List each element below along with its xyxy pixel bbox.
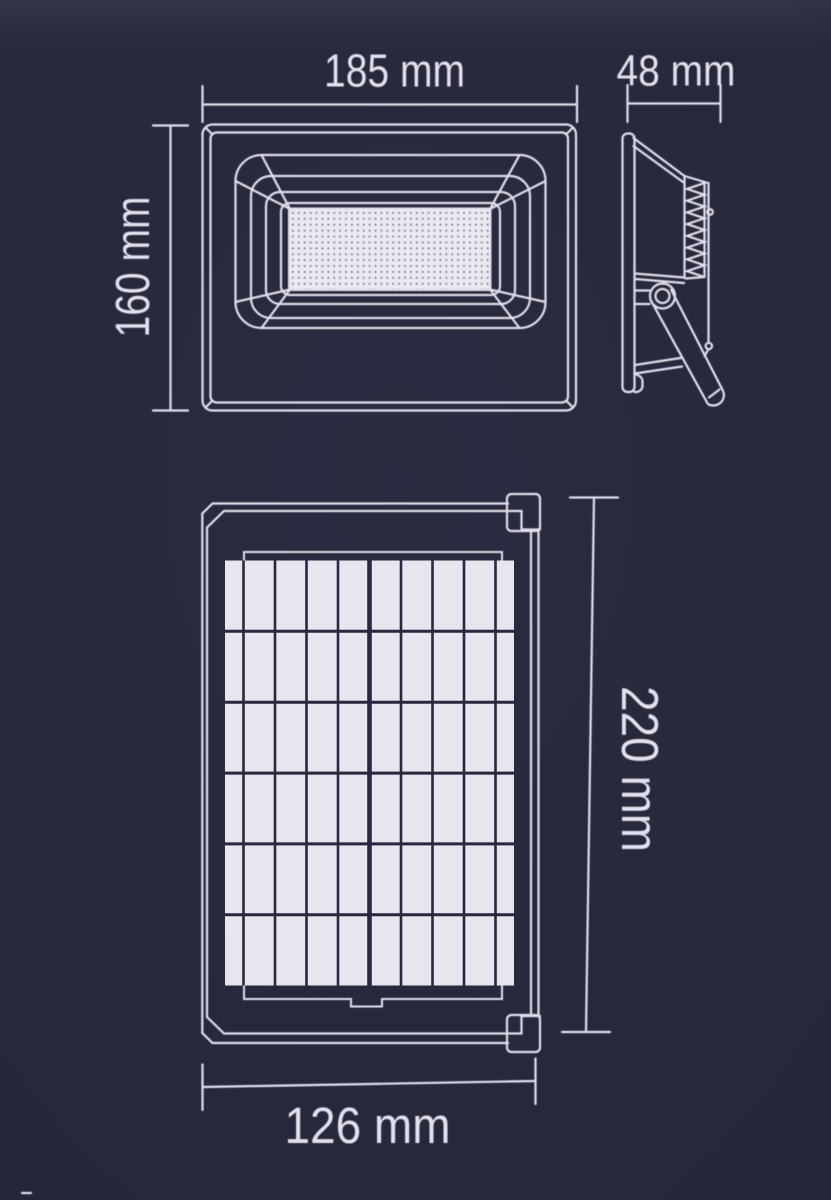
svg-text:220 mm: 220 mm	[610, 686, 668, 852]
svg-text:126 mm: 126 mm	[285, 1097, 451, 1154]
svg-text:48 mm: 48 mm	[617, 47, 736, 96]
svg-text:185 mm: 185 mm	[324, 45, 465, 97]
svg-text:160 mm: 160 mm	[107, 197, 160, 338]
